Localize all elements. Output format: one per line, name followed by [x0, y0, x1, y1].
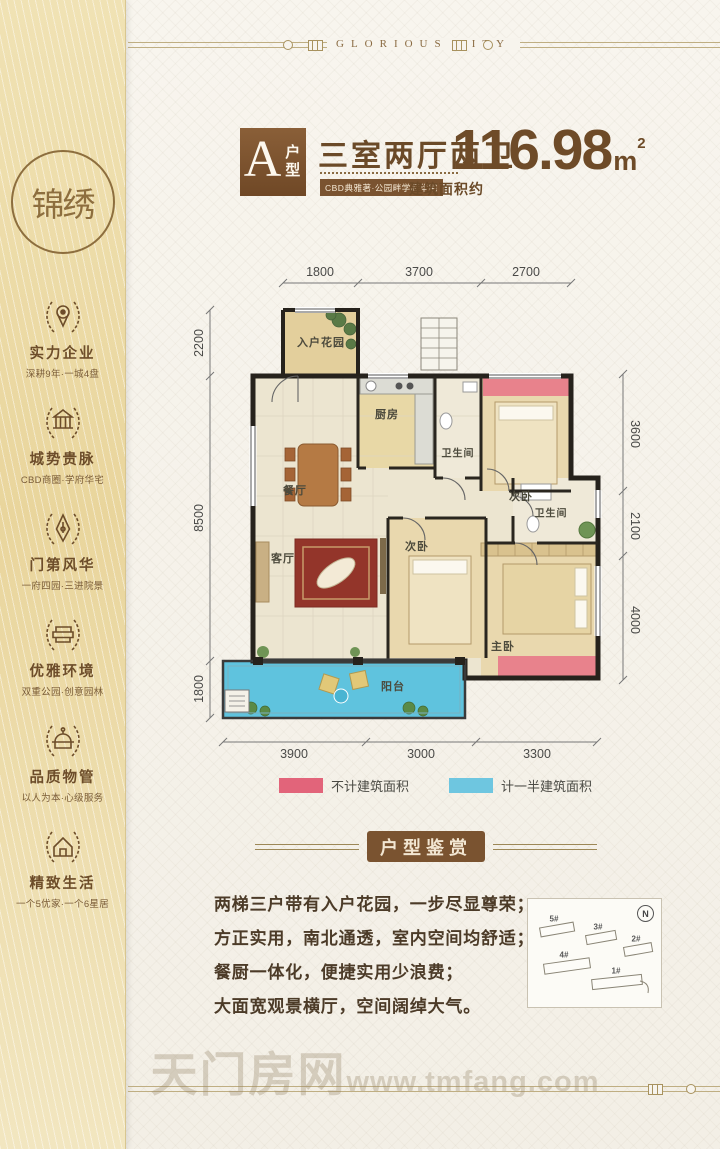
section-rule-right [493, 844, 597, 850]
laurel-location-pin-icon [0, 293, 125, 339]
laurel-home-icon [0, 823, 125, 869]
unit-type-badge: A 户型 [240, 128, 306, 196]
dim-right-2: 2100 [628, 512, 642, 540]
brand-seal-text: 锦绣 [32, 178, 94, 226]
plan-legend: 不计建筑面积 计一半建筑面积 [203, 776, 668, 795]
legend-swatch-pink [279, 778, 323, 793]
feature-subtitle: 以人为本·心级服务 [0, 790, 125, 804]
building-label: 4# [560, 951, 569, 960]
north-arrow-icon: N [637, 905, 654, 922]
feature-subtitle: 一个5优家·一个6星居 [0, 896, 125, 910]
dim-right-3: 4000 [628, 606, 642, 634]
room-label-bedroom-2: 次卧 [405, 538, 429, 554]
building-label: 2# [632, 935, 641, 944]
feature-location: 城势贵脉 CBD商圈·学府华宅 [0, 399, 125, 486]
section-rule-left [255, 844, 359, 850]
footer-ornament-circle [686, 1084, 696, 1094]
laurel-pen-nib-icon [0, 505, 125, 551]
legend-item-excluded: 不计建筑面积 [279, 776, 409, 795]
title-dotted-divider [320, 172, 458, 174]
dim-bottom-1: 3900 [280, 747, 308, 761]
header-ornament-square-left [308, 40, 323, 51]
room-label-bath-2: 卫生间 [535, 505, 568, 520]
room-label-entry-garden: 入户花园 [297, 334, 345, 350]
area-figure: 116.98 m 2 [452, 122, 646, 179]
room-label-master: 主卧 [491, 638, 515, 654]
feature-subtitle: CBD商圈·学府华宅 [0, 472, 125, 486]
poster-page: 锦绣 实力企业 深耕9年·一城4盘 城势贵脉 CBD商圈·学府华宅 [0, 0, 720, 1149]
feature-title: 城势贵脉 [0, 448, 125, 469]
header-ornament-square-right [452, 40, 467, 51]
watermark-site-name: 天门房网 [151, 1048, 347, 1101]
feature-subtitle: 一府四园·三进院景 [0, 578, 125, 592]
dim-bottom-3: 3300 [523, 747, 551, 761]
dim-left-3: 1800 [192, 675, 206, 703]
laurel-bank-icon [0, 399, 125, 445]
area-exponent: 2 [637, 136, 645, 151]
room-label-balcony: 阳台 [381, 678, 405, 694]
feature-environment: 优雅环境 双重公园·创意园林 [0, 611, 125, 698]
description-line: 餐厨一体化，便捷实用少浪费； [214, 956, 544, 990]
room-label-living: 客厅 [271, 550, 295, 566]
floor-plan-drawing [203, 256, 668, 761]
brand-sidebar: 锦绣 实力企业 深耕9年·一城4盘 城势贵脉 CBD商圈·学府华宅 [0, 0, 126, 1149]
building-label: 1# [612, 967, 621, 976]
feature-property: 品质物管 以人为本·心级服务 [0, 717, 125, 804]
header-ornament-circle-left [283, 40, 293, 50]
building-label: 3# [594, 923, 603, 932]
description-line: 两梯三户带有入户花园，一步尽显尊荣； [214, 888, 544, 922]
header-ornament-circle-right [483, 40, 493, 50]
room-label-bedroom-1: 次卧 [509, 488, 533, 504]
footer-ornament-square [648, 1084, 663, 1095]
feature-strength: 实力企业 深耕9年·一城4盘 [0, 293, 125, 380]
feature-title: 实力企业 [0, 342, 125, 363]
building-label: 5# [550, 915, 559, 924]
feature-title: 优雅环境 [0, 660, 125, 681]
floor-plan: 入户花园 厨房 卫生间 次卧 餐厅 客厅 次卧 卫生间 主卧 阳台 1800 3… [203, 256, 668, 761]
area-label: 建筑面积约 [409, 179, 484, 199]
watermark: 天门房网www.tmfang.com [140, 1036, 610, 1105]
legend-label: 不计建筑面积 [331, 776, 409, 795]
laurel-dome-icon [0, 717, 125, 763]
feature-heritage: 门第风华 一府四园·三进院景 [0, 505, 125, 592]
room-label-dining: 餐厅 [283, 482, 307, 498]
legend-item-half: 计一半建筑面积 [449, 776, 592, 795]
dim-top-2: 3700 [405, 265, 433, 279]
description-line: 大面宽观景横厅，空间阔绰大气。 [214, 990, 544, 1024]
unit-description: 两梯三户带有入户花园，一步尽显尊荣； 方正实用，南北通透，室内空间均舒适； 餐厨… [214, 888, 544, 1024]
watermark-url: www.tmfang.com [347, 1066, 600, 1098]
brand-seal-logo: 锦绣 [11, 150, 115, 254]
feature-title: 精致生活 [0, 872, 125, 893]
legend-swatch-blue [449, 778, 493, 793]
section-title-banner: 户型鉴赏 [367, 831, 485, 862]
dim-top-3: 2700 [512, 265, 540, 279]
description-line: 方正实用，南北通透，室内空间均舒适； [214, 922, 544, 956]
dim-right-1: 3600 [628, 420, 642, 448]
feature-subtitle: 双重公园·创意园林 [0, 684, 125, 698]
feature-life: 精致生活 一个5优家·一个6星居 [0, 823, 125, 910]
dim-top-1: 1800 [306, 265, 334, 279]
area-value: 116.98 [452, 122, 611, 179]
room-label-kitchen: 厨房 [375, 406, 399, 422]
area-unit: m [613, 148, 637, 175]
site-plan-map: N 5# 3# 2# 4# 1# [527, 898, 662, 1008]
unit-suffix: 户型 [285, 144, 302, 180]
room-label-bath-1: 卫生间 [442, 445, 475, 460]
laurel-books-icon [0, 611, 125, 657]
dim-bottom-2: 3000 [407, 747, 435, 761]
unit-letter: A [244, 134, 282, 186]
legend-label: 计一半建筑面积 [501, 776, 592, 795]
dim-left-1: 2200 [192, 329, 206, 357]
feature-title: 门第风华 [0, 554, 125, 575]
feature-subtitle: 深耕9年·一城4盘 [0, 366, 125, 380]
feature-title: 品质物管 [0, 766, 125, 787]
dim-left-2: 8500 [192, 504, 206, 532]
